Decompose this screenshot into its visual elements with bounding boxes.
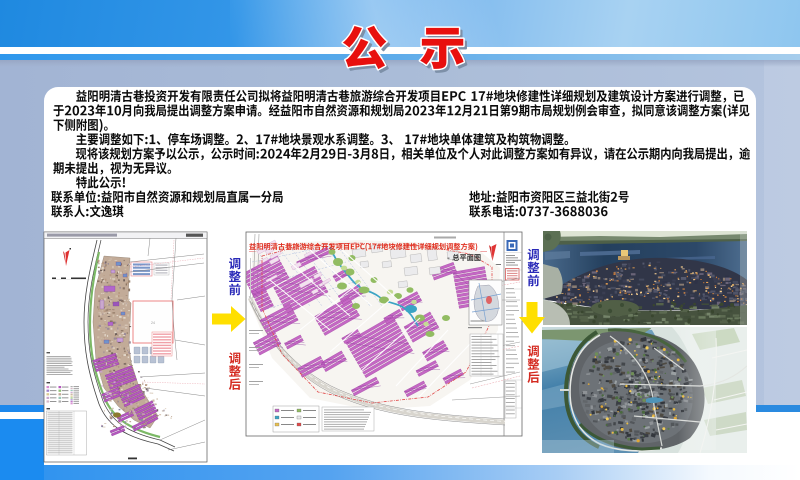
svg-text:24: 24 (151, 321, 155, 325)
